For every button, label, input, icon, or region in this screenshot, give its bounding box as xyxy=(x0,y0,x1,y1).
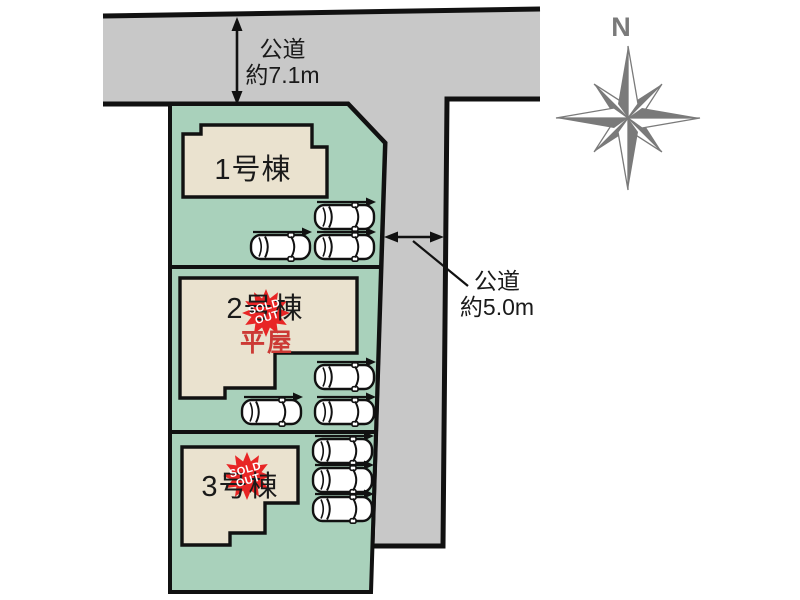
compass-north-label: N xyxy=(603,12,639,43)
car-icon xyxy=(251,228,312,262)
car-icon xyxy=(315,393,376,427)
car-icon xyxy=(313,461,374,495)
site-plan: 公道 約7.1m 公道 約5.0m 1号棟 2号棟 平屋 3号棟 SOLD OU… xyxy=(0,0,800,600)
site-plan-drawing xyxy=(0,0,800,600)
road-top-width: 約7.1m xyxy=(225,62,340,88)
compass-rose-icon xyxy=(556,46,700,190)
road-side-width: 約5.0m xyxy=(446,294,548,320)
car-icon xyxy=(313,490,374,524)
car-icon xyxy=(313,432,374,466)
road-top-name: 公道 xyxy=(225,36,340,62)
road-top-dimension-label: 公道 約7.1m xyxy=(225,36,340,88)
car-icon xyxy=(315,198,376,232)
road-side-name: 公道 xyxy=(446,268,548,294)
car-icon xyxy=(315,228,376,262)
car-icon xyxy=(242,393,303,427)
road-side-dimension-label: 公道 約5.0m xyxy=(446,268,548,320)
car-icon xyxy=(315,358,376,392)
building-1-label: 1号棟 xyxy=(183,146,323,188)
